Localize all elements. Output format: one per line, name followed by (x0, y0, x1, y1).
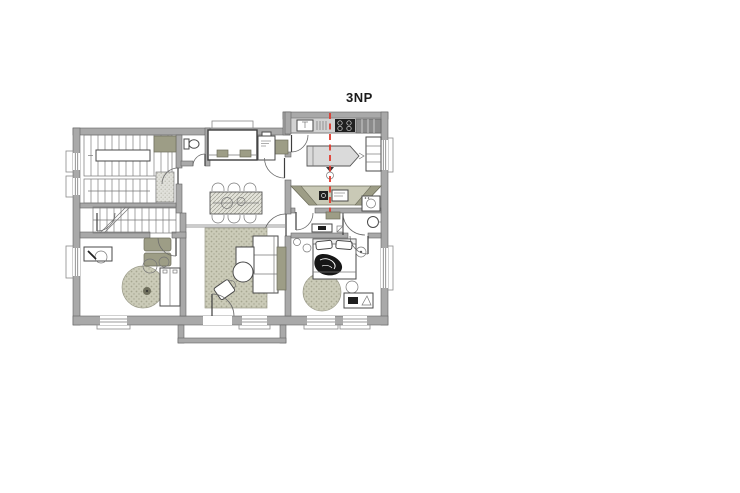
tv-sideboard-icon (277, 247, 286, 290)
armchair-icon (144, 238, 171, 251)
floor-plan-page: 3NP (0, 0, 740, 493)
bed-icon (313, 239, 356, 279)
french-window-unit (208, 130, 257, 160)
bedroom-right (294, 236, 374, 311)
nightstand-icon (303, 244, 311, 252)
washbasin-icon (368, 217, 379, 228)
hallway (264, 212, 381, 236)
bedroom-left (84, 238, 180, 308)
desk-icon (344, 293, 373, 308)
living-room (205, 228, 286, 316)
round-rug-icon (122, 266, 164, 308)
coffee-table-icon (233, 262, 253, 282)
boiler-unit (258, 132, 288, 160)
wardrobe-icon (160, 268, 180, 306)
desk-icon (84, 247, 112, 263)
floor-plan-drawing (0, 0, 740, 493)
staircase-lower-flight (93, 207, 176, 233)
kitchen (291, 113, 381, 212)
shaft-hatch (156, 172, 174, 202)
staircase (84, 135, 178, 203)
shelf-icon (326, 212, 340, 219)
tall-cabinets (356, 119, 381, 133)
dining-room (186, 158, 285, 227)
chair-icon (346, 281, 358, 293)
toilet-icon (184, 139, 189, 149)
stair-cabinet (154, 136, 176, 152)
kitchen-island-icon (307, 146, 359, 166)
washing-machine-icon (362, 196, 380, 211)
